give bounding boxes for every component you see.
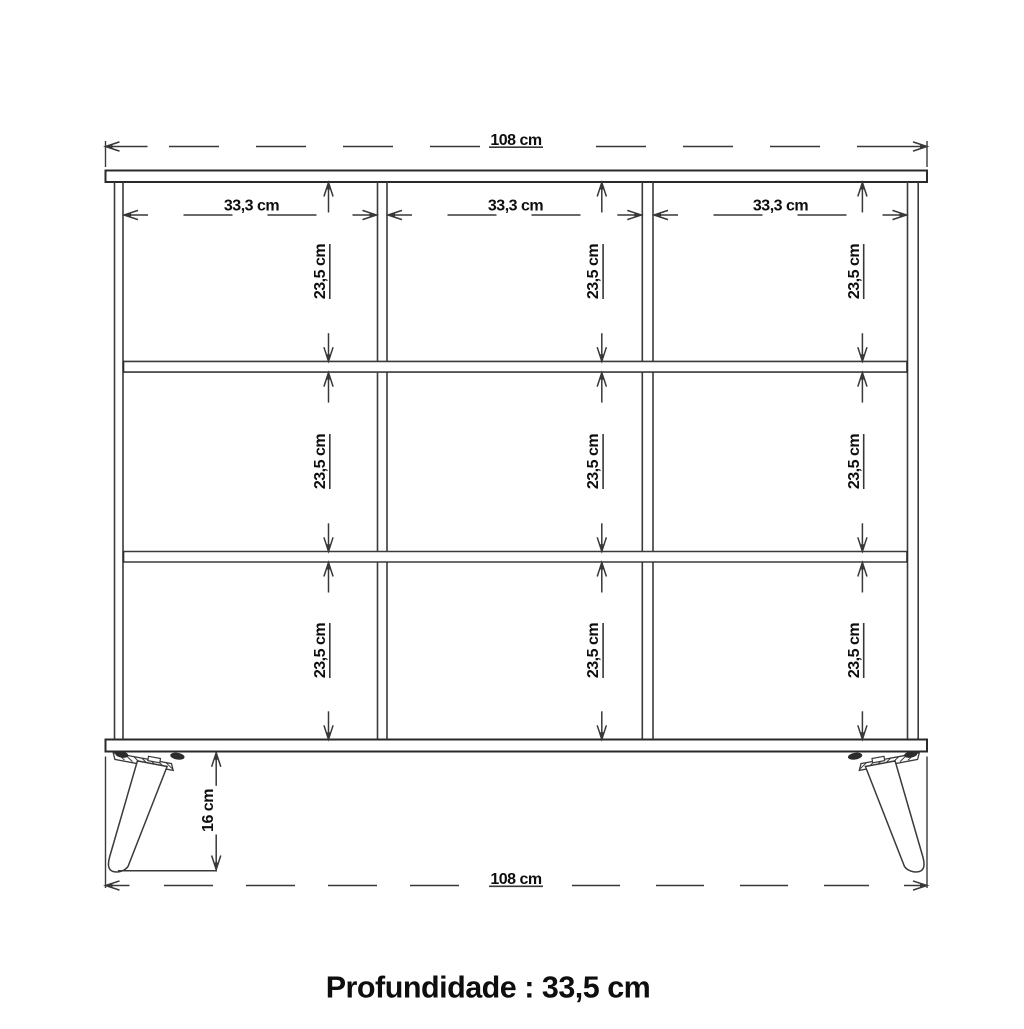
svg-text:23,5 cm: 23,5 cm (312, 623, 329, 678)
svg-text:23,5 cm: 23,5 cm (585, 244, 602, 299)
svg-text:108 cm: 108 cm (490, 871, 542, 888)
svg-text:33,3 cm: 33,3 cm (224, 198, 279, 215)
svg-text:23,5 cm: 23,5 cm (312, 434, 329, 489)
svg-text:23,5 cm: 23,5 cm (312, 244, 329, 299)
svg-text:33,3 cm: 33,3 cm (488, 198, 543, 215)
svg-text:23,5 cm: 23,5 cm (585, 434, 602, 489)
svg-text:16 cm: 16 cm (200, 789, 217, 832)
svg-text:23,5 cm: 23,5 cm (846, 244, 863, 299)
svg-text:23,5 cm: 23,5 cm (846, 434, 863, 489)
svg-text:Profundidade : 33,5 cm: Profundidade : 33,5 cm (326, 971, 651, 1005)
svg-text:23,5 cm: 23,5 cm (585, 623, 602, 678)
svg-text:23,5 cm: 23,5 cm (846, 623, 863, 678)
svg-text:33,3 cm: 33,3 cm (753, 198, 808, 215)
svg-text:108 cm: 108 cm (490, 132, 542, 149)
